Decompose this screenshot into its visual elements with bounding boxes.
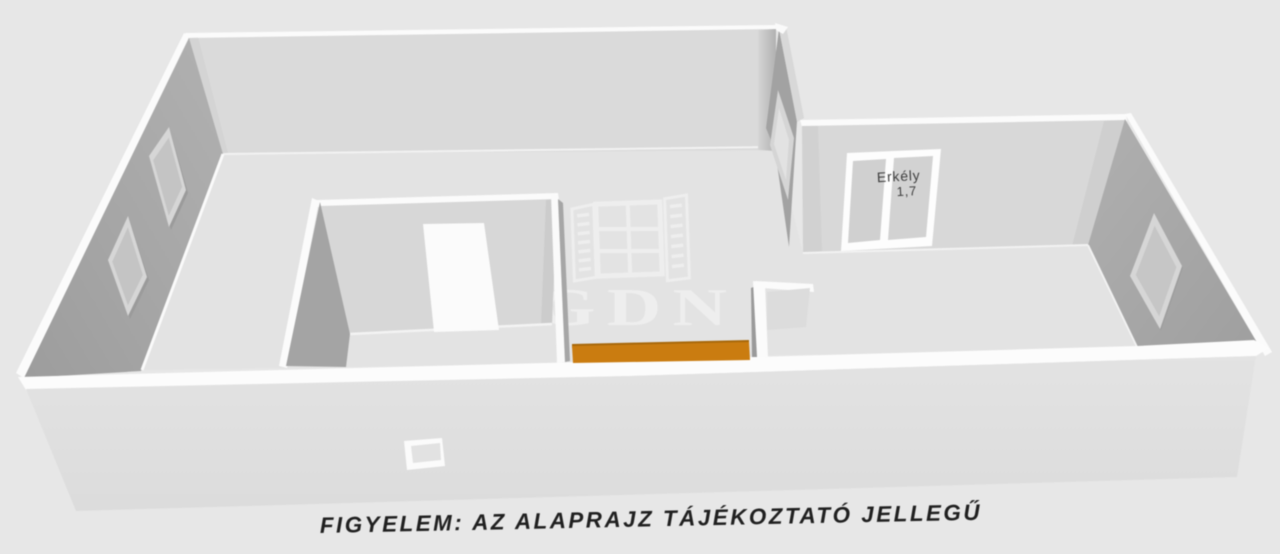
svg-text:1,7: 1,7 (896, 183, 917, 199)
